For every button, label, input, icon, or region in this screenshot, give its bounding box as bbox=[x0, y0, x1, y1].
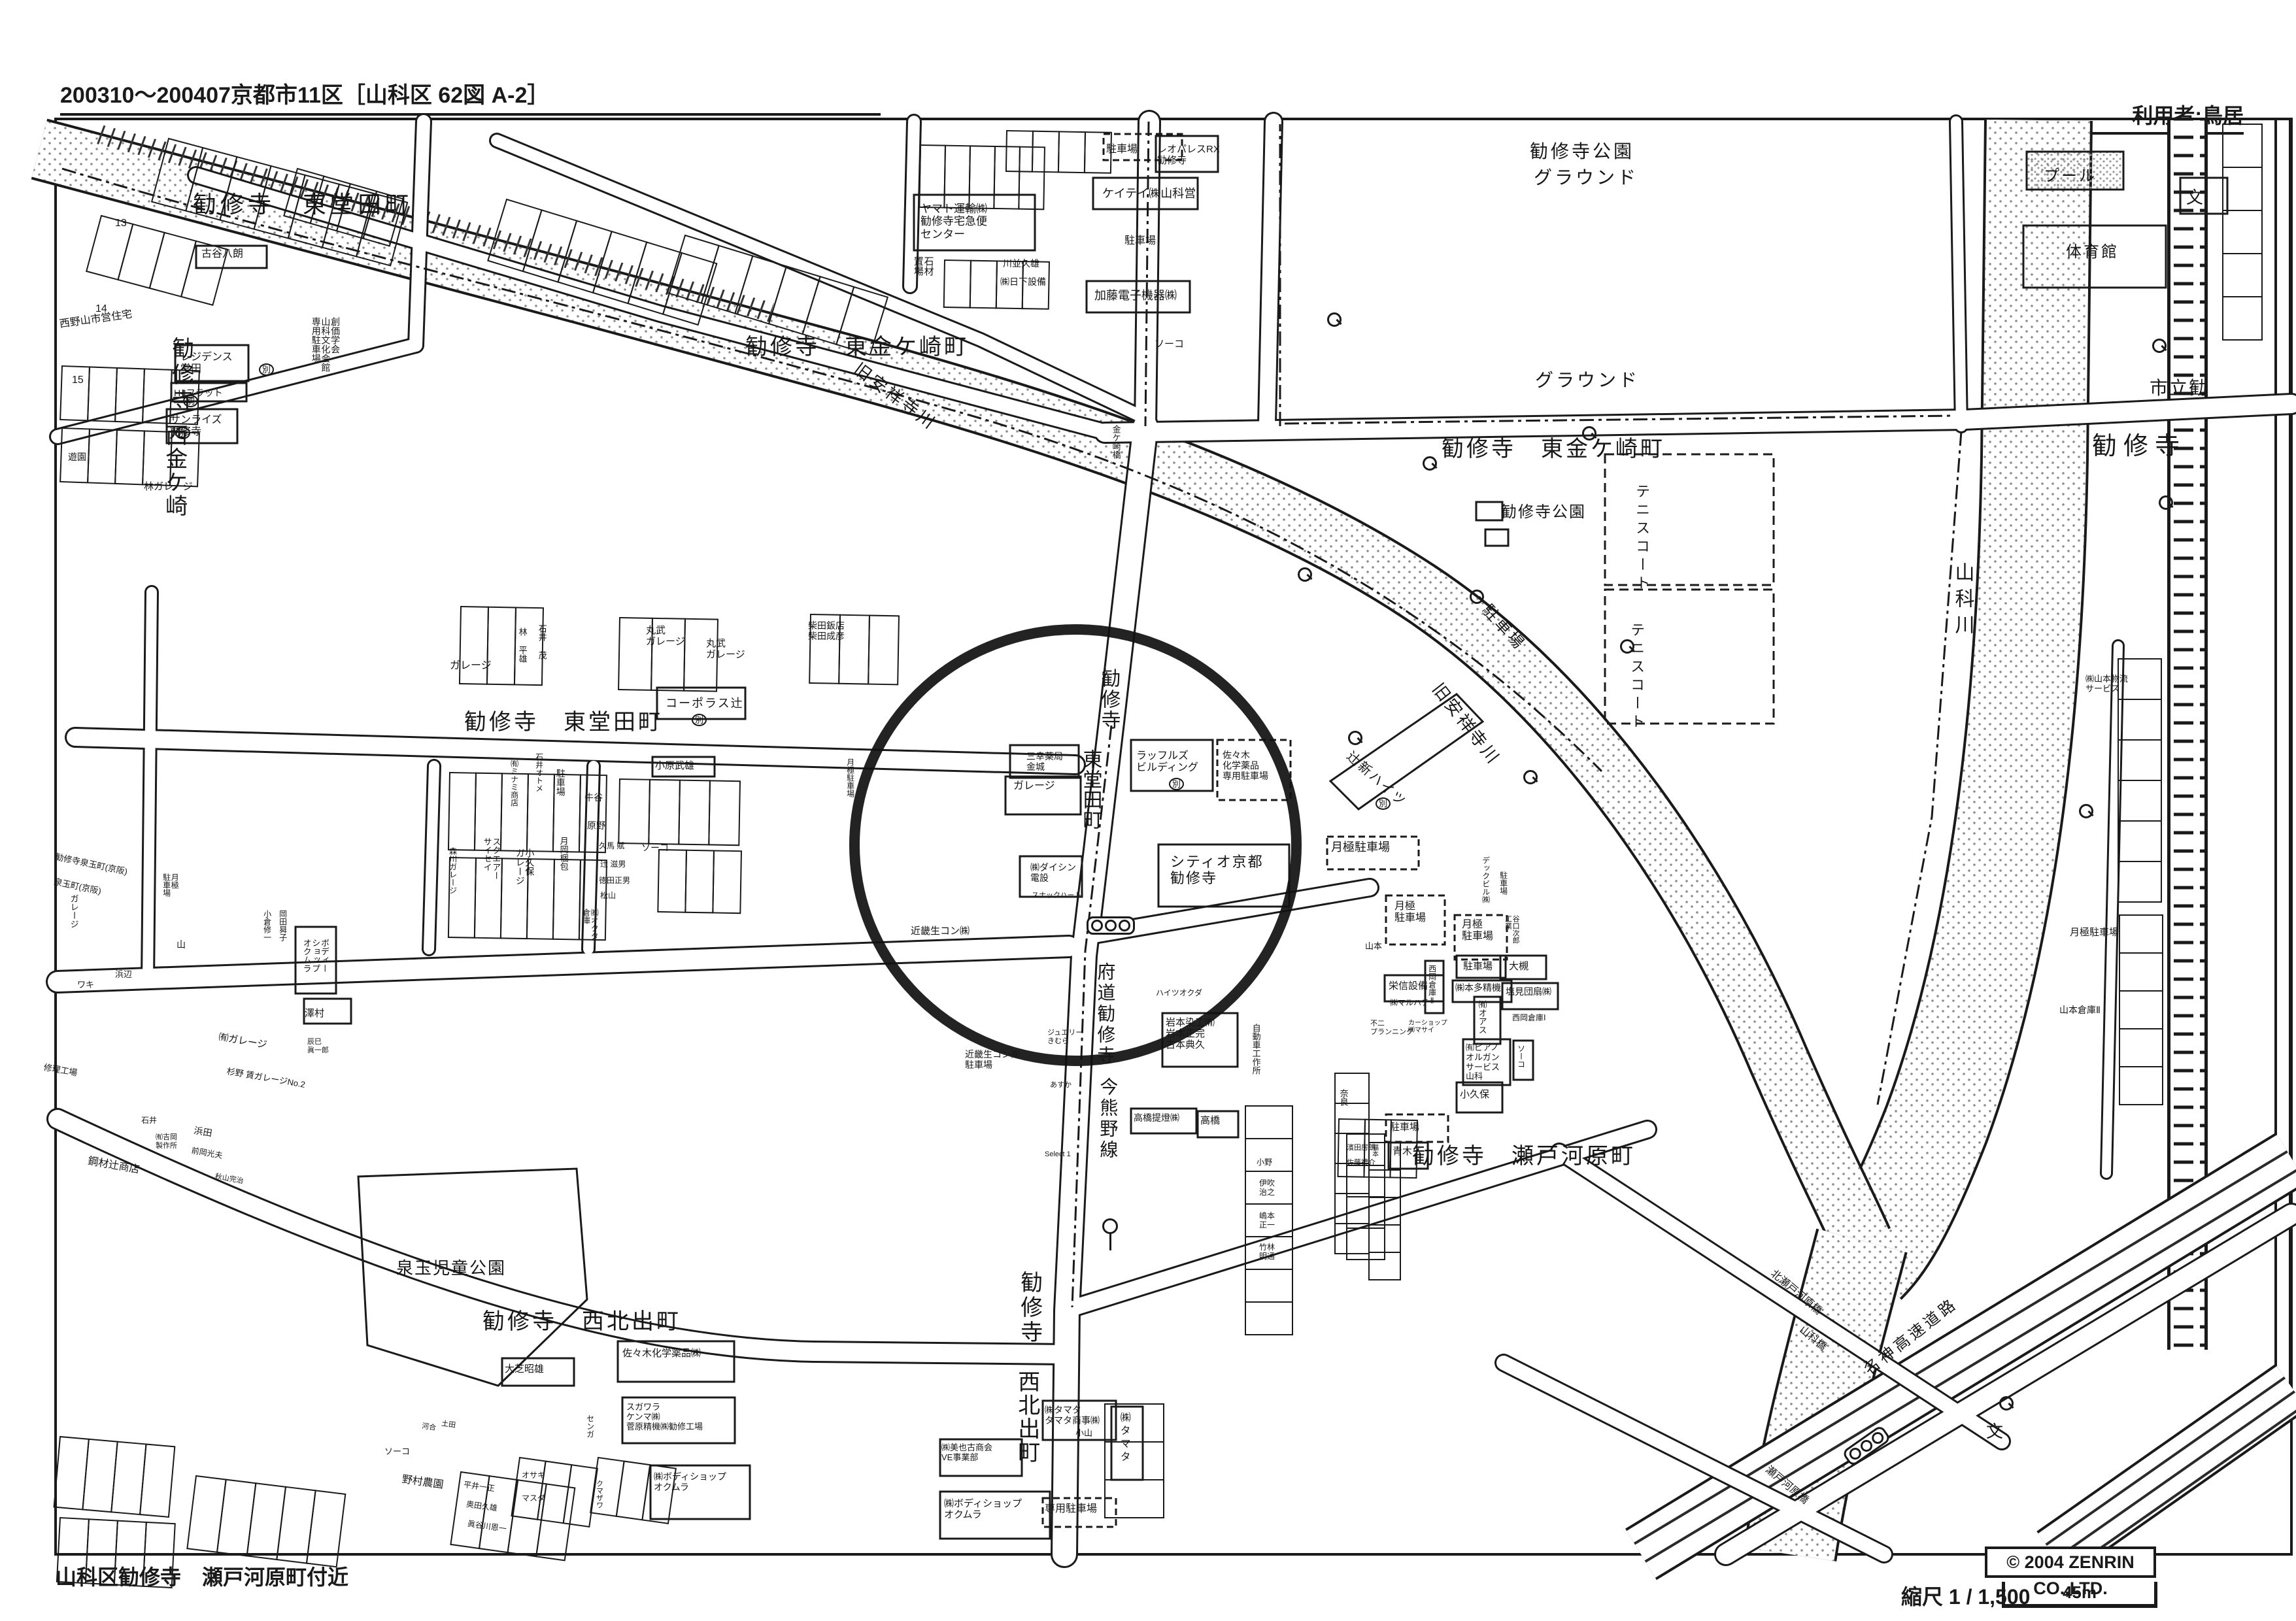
copyright-notice: © 2004 ZENRIN CO.,LTD. bbox=[1985, 1546, 2156, 1578]
zenrin-map-page: 200310～200407京都市11区［山科区 62図 A-2］ 利用者:鳥居 bbox=[0, 0, 2296, 1621]
map-canvas: 勧修寺 東堂田町勧修寺 東金ケ崎町勧修寺 東金ケ崎町勧修寺 東堂田町勧修寺 西北… bbox=[0, 0, 2296, 1621]
map-footer-title: 山科区勧修寺 瀬戸河原町付近 bbox=[56, 1561, 348, 1591]
map-base-drawing bbox=[0, 0, 2296, 1621]
